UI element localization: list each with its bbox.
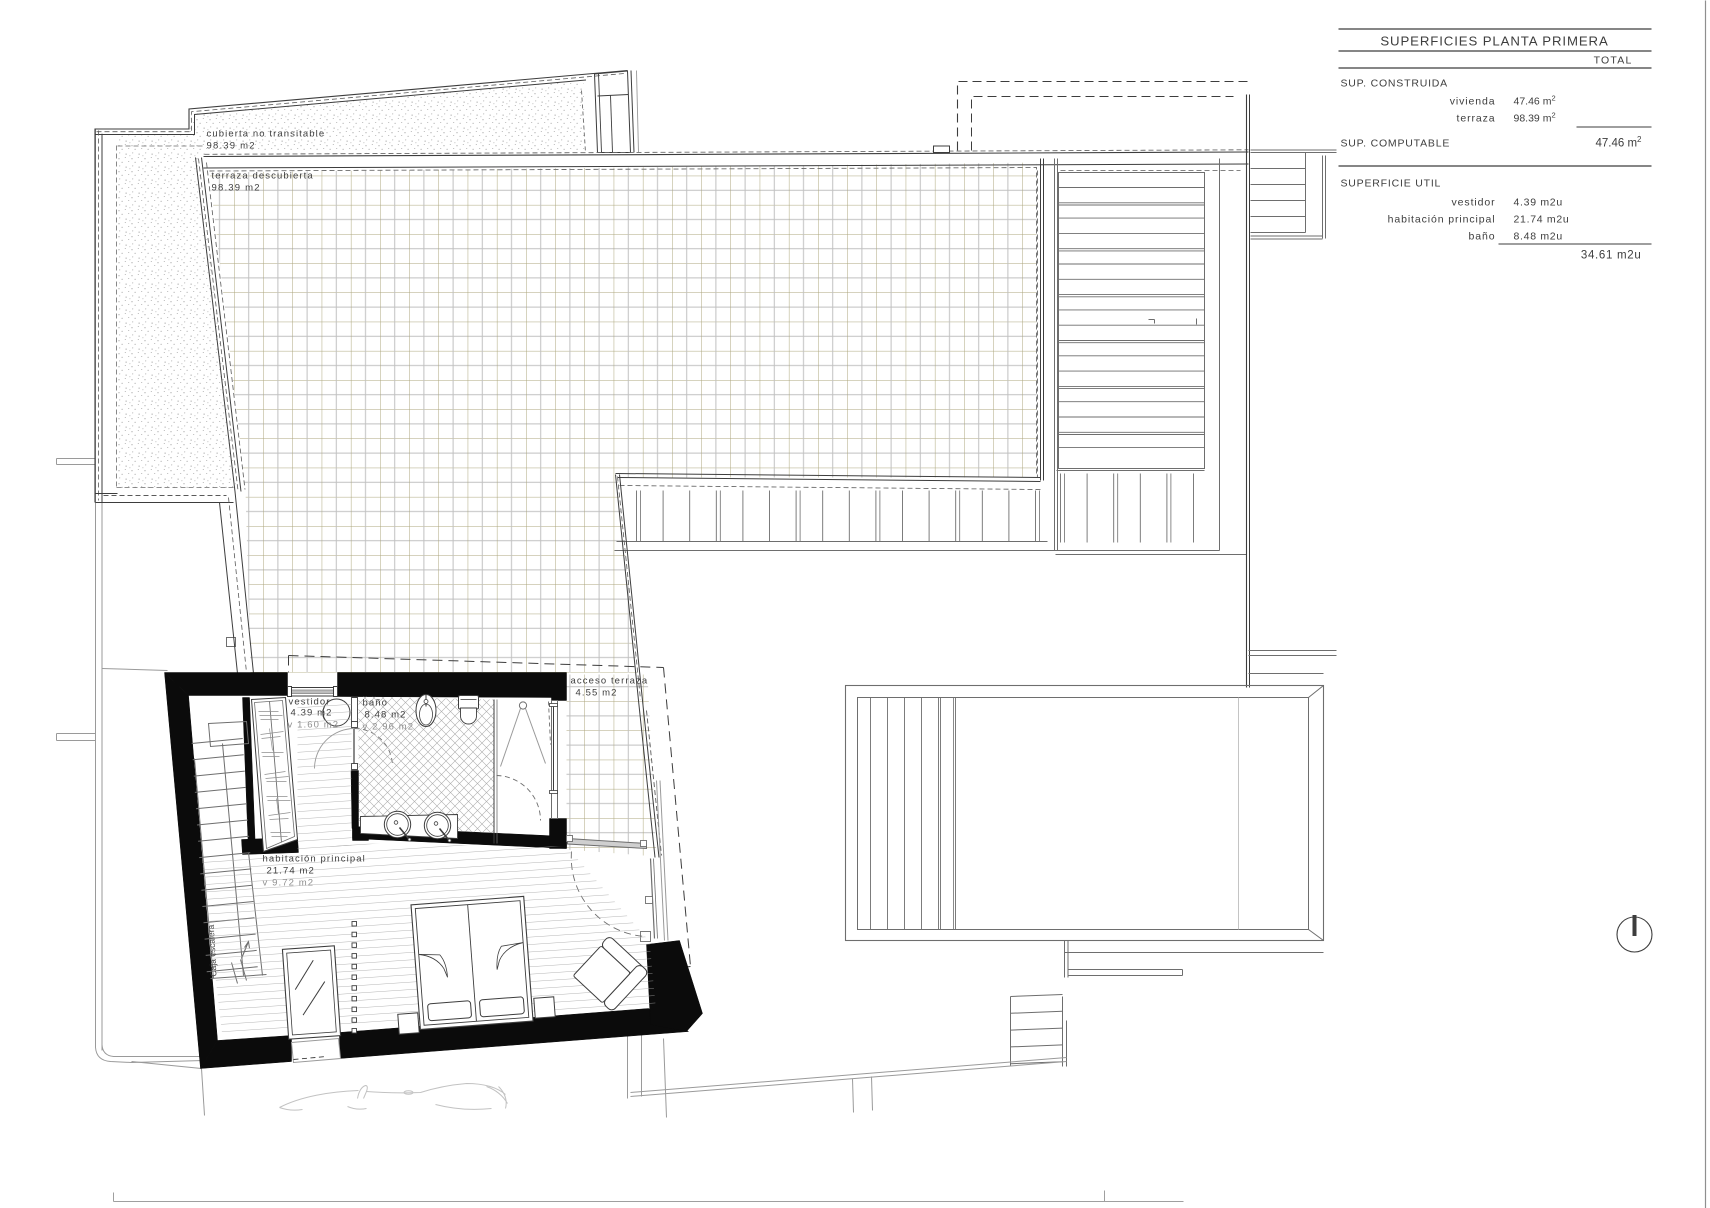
svg-text:terraza descubierta: terraza descubierta: [212, 171, 314, 182]
svg-text:acceso terraza: acceso terraza: [571, 676, 649, 687]
svg-text:v 2.96 m2: v 2.96 m2: [363, 722, 415, 733]
svg-text:47.46 m2: 47.46 m2: [1595, 135, 1642, 150]
svg-text:98.39 m2: 98.39 m2: [1514, 111, 1556, 125]
svg-text:98.39 m2: 98.39 m2: [207, 141, 256, 152]
svg-text:TOTAL: TOTAL: [1594, 55, 1633, 67]
svg-text:SUPERFICIES PLANTA PRIMERA: SUPERFICIES PLANTA PRIMERA: [1380, 34, 1608, 49]
svg-text:21.74 m2: 21.74 m2: [267, 866, 315, 877]
svg-text:baño: baño: [363, 698, 389, 709]
svg-text:habitación principal: habitación principal: [263, 854, 366, 865]
svg-text:baño: baño: [1469, 231, 1496, 243]
svg-text:SUPERFICIE UTIL: SUPERFICIE UTIL: [1341, 178, 1442, 190]
svg-text:vivienda: vivienda: [1450, 96, 1496, 108]
svg-text:4.39 m2u: 4.39 m2u: [1514, 197, 1563, 209]
svg-text:34.61 m2u: 34.61 m2u: [1581, 250, 1642, 262]
svg-text:cubierta no transitable: cubierta no transitable: [207, 129, 326, 140]
svg-text:SUP. CONSTRUIDA: SUP. CONSTRUIDA: [1341, 78, 1449, 90]
svg-text:21.74 m2u: 21.74 m2u: [1514, 214, 1570, 226]
svg-text:v 9.72 m2: v 9.72 m2: [263, 878, 315, 889]
svg-text:terraza: terraza: [1457, 113, 1496, 125]
svg-text:vestidor: vestidor: [1452, 197, 1496, 209]
svg-text:47.46 m2: 47.46 m2: [1514, 94, 1556, 108]
svg-text:SUP. COMPUTABLE: SUP. COMPUTABLE: [1341, 138, 1451, 150]
svg-text:98.39 m2: 98.39 m2: [212, 183, 261, 194]
svg-text:4.55 m2: 4.55 m2: [576, 688, 618, 699]
svg-text:habitación principal: habitación principal: [1388, 214, 1496, 226]
svg-text:8.48 m2: 8.48 m2: [365, 710, 407, 721]
svg-text:8.48 m2u: 8.48 m2u: [1514, 231, 1563, 243]
